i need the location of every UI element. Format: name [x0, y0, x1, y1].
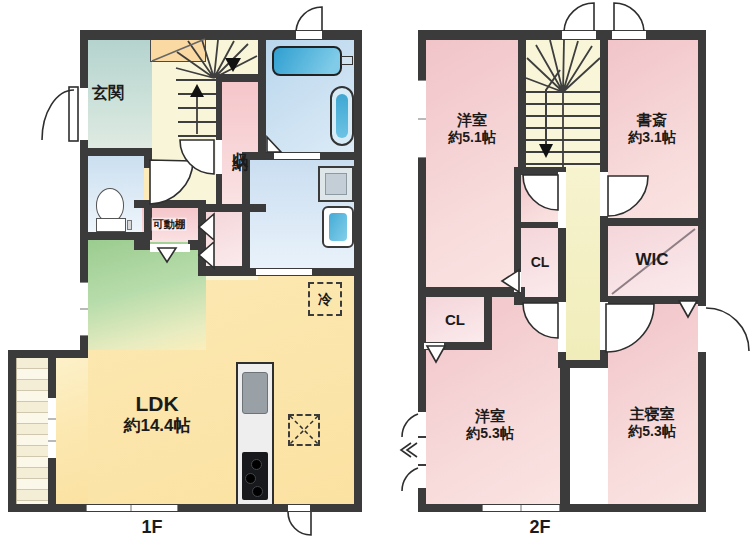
label-yoshitsu-b-name: 洋室	[475, 407, 505, 424]
cl-b-opening	[424, 343, 444, 349]
shoe-cabinet	[150, 38, 206, 62]
casement-window	[418, 466, 426, 488]
wall	[80, 148, 152, 156]
bath-faucet	[341, 56, 353, 65]
balcony-door-opening	[562, 31, 596, 39]
balcony-door-arc	[564, 3, 594, 31]
bathtub	[272, 46, 342, 76]
window-divider	[80, 308, 88, 310]
wall	[242, 160, 250, 268]
caption-2f: 2F	[529, 517, 550, 538]
casement-window	[418, 438, 426, 464]
label-cl-a: CL	[531, 254, 550, 270]
wall	[258, 40, 266, 160]
reserved-space-box	[288, 414, 320, 446]
label-genkan: 玄関	[92, 84, 124, 102]
label-shosai-name: 書斎	[637, 111, 667, 128]
wall	[84, 232, 152, 240]
label-ldk-size: 約14.4帖	[123, 416, 190, 436]
window	[86, 505, 178, 511]
bath-door-opening	[274, 153, 320, 159]
cl-a-opening	[514, 272, 521, 292]
window-divider	[520, 505, 522, 511]
balcony-door-opening-right	[698, 306, 706, 352]
understairs-door-opening	[216, 140, 222, 174]
wall	[698, 40, 706, 504]
wall	[144, 148, 152, 168]
toilet-tank	[96, 218, 126, 232]
wall	[16, 350, 88, 358]
balcony-door-arc	[614, 3, 644, 31]
label-yoshitsu-b-size: 約5.3帖	[466, 425, 513, 441]
casement-window-arc	[402, 414, 418, 437]
window-divider	[418, 118, 426, 120]
bath-service-door-arc	[296, 7, 322, 31]
vanity-sink-bowl	[329, 213, 347, 241]
floor-plan-canvas: 玄関 収納 可動棚 冷 LDK 約14.4帖 1F 洋室 約5.1帖 書斎 約3…	[0, 0, 753, 543]
toilet-bowl	[96, 188, 124, 222]
shushinshitsu-door-opening	[600, 302, 608, 350]
kadoudana-opening	[150, 244, 190, 252]
window-divider	[130, 505, 132, 511]
room-yoshitsu-a	[426, 40, 518, 287]
label-shushinshitsu-size: 約5.3帖	[628, 423, 675, 439]
ldk-door-opening	[288, 505, 310, 511]
wall	[560, 368, 570, 504]
yoshitsu-a-door-opening	[558, 172, 566, 228]
front-door-arc	[42, 90, 74, 140]
wall	[518, 40, 526, 167]
label-shosai-size: 約3.1帖	[628, 129, 675, 145]
corridor-2f	[566, 168, 600, 360]
yoshitsu-b-door-opening	[558, 302, 566, 352]
wall	[418, 287, 525, 297]
shower-unit-inner	[336, 94, 348, 138]
kitchen-sink	[242, 372, 268, 414]
label-kadoudana: 可動棚	[152, 218, 187, 231]
room-shushinshitsu	[608, 304, 698, 504]
room-ldk-annex	[56, 358, 88, 504]
label-ldk-name: LDK	[135, 392, 178, 416]
wall	[558, 228, 566, 302]
shosai-door-opening	[600, 172, 608, 216]
wall	[134, 200, 206, 208]
label-shushinshitsu-name: 主寝室	[630, 405, 675, 422]
label-shunou: 収納	[231, 139, 249, 145]
balcony-door-opening	[612, 31, 646, 39]
window-divider	[48, 440, 56, 442]
casement-window-arc	[402, 468, 418, 491]
casement-window	[418, 412, 426, 436]
label-wic: WIC	[635, 250, 668, 270]
wall	[608, 296, 706, 304]
label-yoshitsu-a-size: 約5.1帖	[448, 129, 495, 145]
washroom-sliding-door	[256, 269, 312, 275]
wall	[514, 175, 521, 222]
window-divider	[48, 418, 56, 420]
label-yoshitsu-a-name: 洋室	[457, 111, 487, 128]
hall-green-area	[88, 240, 206, 350]
label-cl-b: CL	[445, 311, 465, 328]
wall	[8, 350, 16, 512]
wall	[354, 40, 362, 512]
wall	[134, 240, 150, 250]
ldk-exterior-door-arc	[288, 512, 311, 535]
stove-burner	[245, 473, 256, 484]
closet-1f	[206, 212, 242, 266]
bath-service-door-opening	[296, 31, 322, 39]
deck-steps	[16, 358, 48, 504]
doorway-yoshitsu-a	[521, 175, 558, 222]
caption-1f: 1F	[141, 517, 162, 538]
vent-window-chevrons	[401, 443, 417, 457]
wall	[600, 216, 608, 302]
front-door-leaf	[69, 87, 78, 141]
wall	[608, 218, 706, 226]
wall	[198, 204, 242, 212]
wall	[418, 504, 706, 512]
label-rei: 冷	[318, 291, 332, 307]
wall	[600, 350, 608, 368]
hall-1f	[152, 40, 178, 208]
front-door-opening	[80, 88, 88, 140]
washing-machine-drum	[325, 173, 347, 195]
toilet-handle	[127, 220, 132, 230]
window	[48, 398, 56, 458]
stove-burner	[251, 459, 262, 470]
wall	[600, 40, 608, 172]
stove-burner	[252, 486, 263, 497]
wall	[514, 228, 521, 272]
right-balcony-door-arc	[706, 308, 749, 351]
stairs-2f-area	[526, 40, 600, 168]
